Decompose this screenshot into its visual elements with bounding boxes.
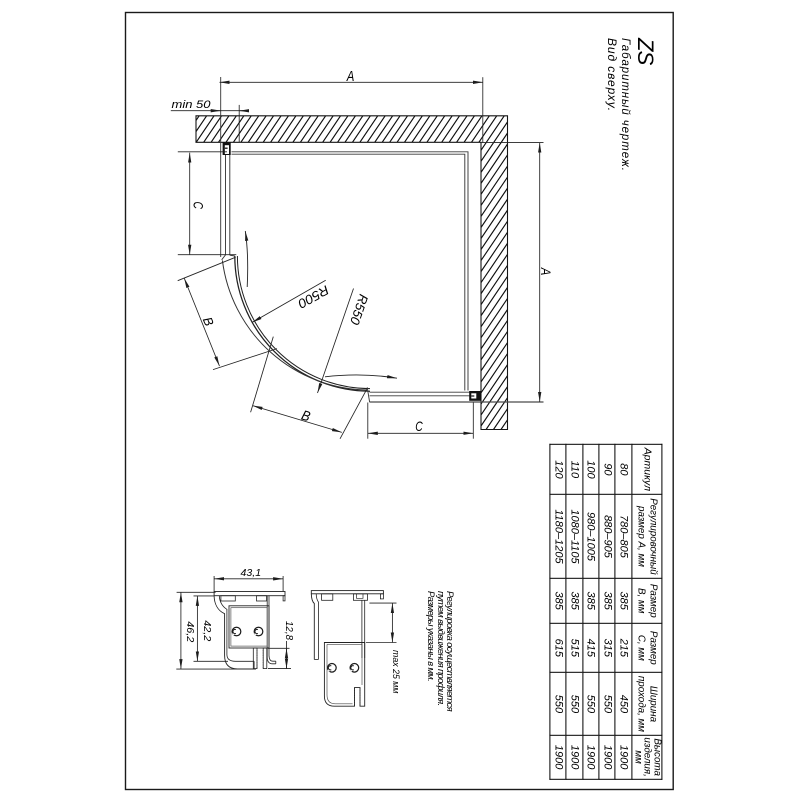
svg-text:46,2: 46,2 — [184, 621, 195, 642]
svg-text:C: C — [415, 418, 423, 434]
svg-text:43,1: 43,1 — [241, 568, 262, 579]
svg-text:A: A — [346, 69, 354, 85]
svg-text:12,8: 12,8 — [283, 621, 294, 640]
svg-text:R500: R500 — [295, 282, 332, 312]
svg-text:min 50: min 50 — [172, 99, 212, 111]
svg-text:max 25 мм: max 25 мм — [391, 650, 401, 693]
svg-text:C: C — [190, 202, 206, 210]
svg-text:B: B — [200, 315, 217, 329]
svg-text:B: B — [300, 407, 313, 425]
svg-text:42,2: 42,2 — [201, 620, 212, 641]
svg-text:A: A — [538, 267, 554, 275]
